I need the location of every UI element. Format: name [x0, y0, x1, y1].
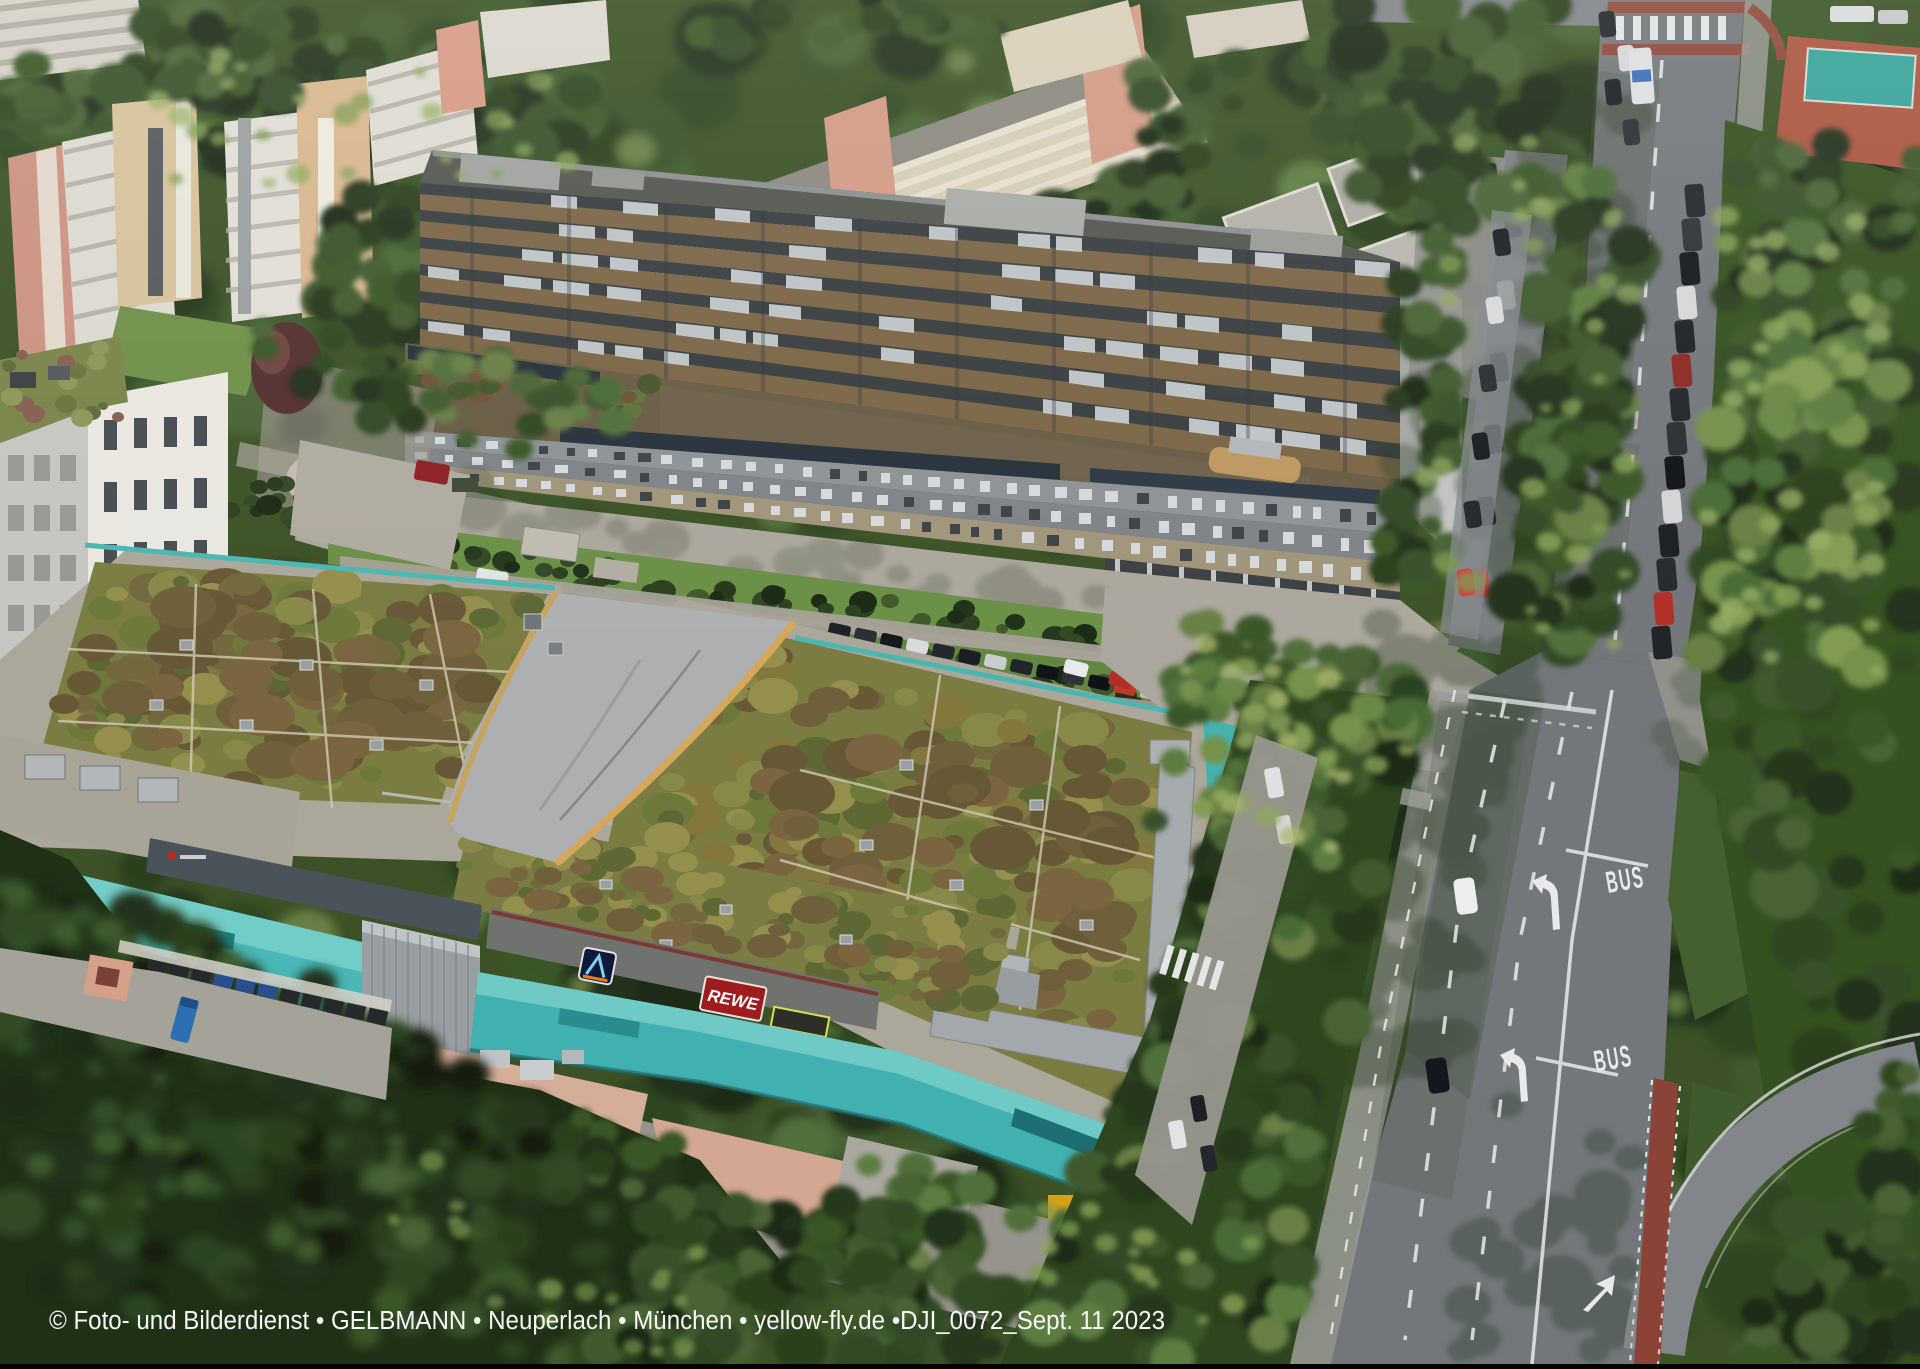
svg-text:© Foto- und Bilderdienst • GEL: © Foto- und Bilderdienst • GELBMANN • Ne…	[49, 1307, 1165, 1335]
